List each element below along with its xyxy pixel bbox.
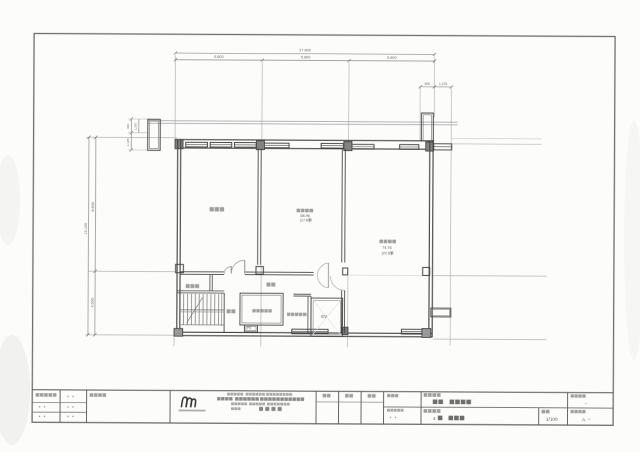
svg-text:1.125: 1.125 bbox=[126, 138, 130, 146]
svg-text:1/100: 1/100 bbox=[546, 417, 558, 422]
svg-text:5.800: 5.800 bbox=[387, 56, 397, 60]
svg-text:EV: EV bbox=[321, 314, 327, 319]
svg-text:4.500: 4.500 bbox=[90, 298, 94, 308]
svg-text:17.800: 17.800 bbox=[299, 47, 312, 52]
svg-text:8.600: 8.600 bbox=[91, 202, 95, 212]
svg-text:1.200: 1.200 bbox=[134, 122, 138, 130]
svg-text:PS: PS bbox=[247, 326, 251, 330]
svg-text:74.76: 74.76 bbox=[382, 246, 392, 250]
svg-text:5.800: 5.800 bbox=[214, 55, 224, 59]
svg-text:1.125: 1.125 bbox=[439, 82, 447, 86]
svg-text:900: 900 bbox=[424, 82, 430, 86]
svg-text:13.100: 13.100 bbox=[84, 223, 88, 235]
svg-text:4: 4 bbox=[433, 416, 436, 422]
svg-text:5.800: 5.800 bbox=[301, 55, 311, 59]
svg-text:900: 900 bbox=[126, 123, 130, 128]
